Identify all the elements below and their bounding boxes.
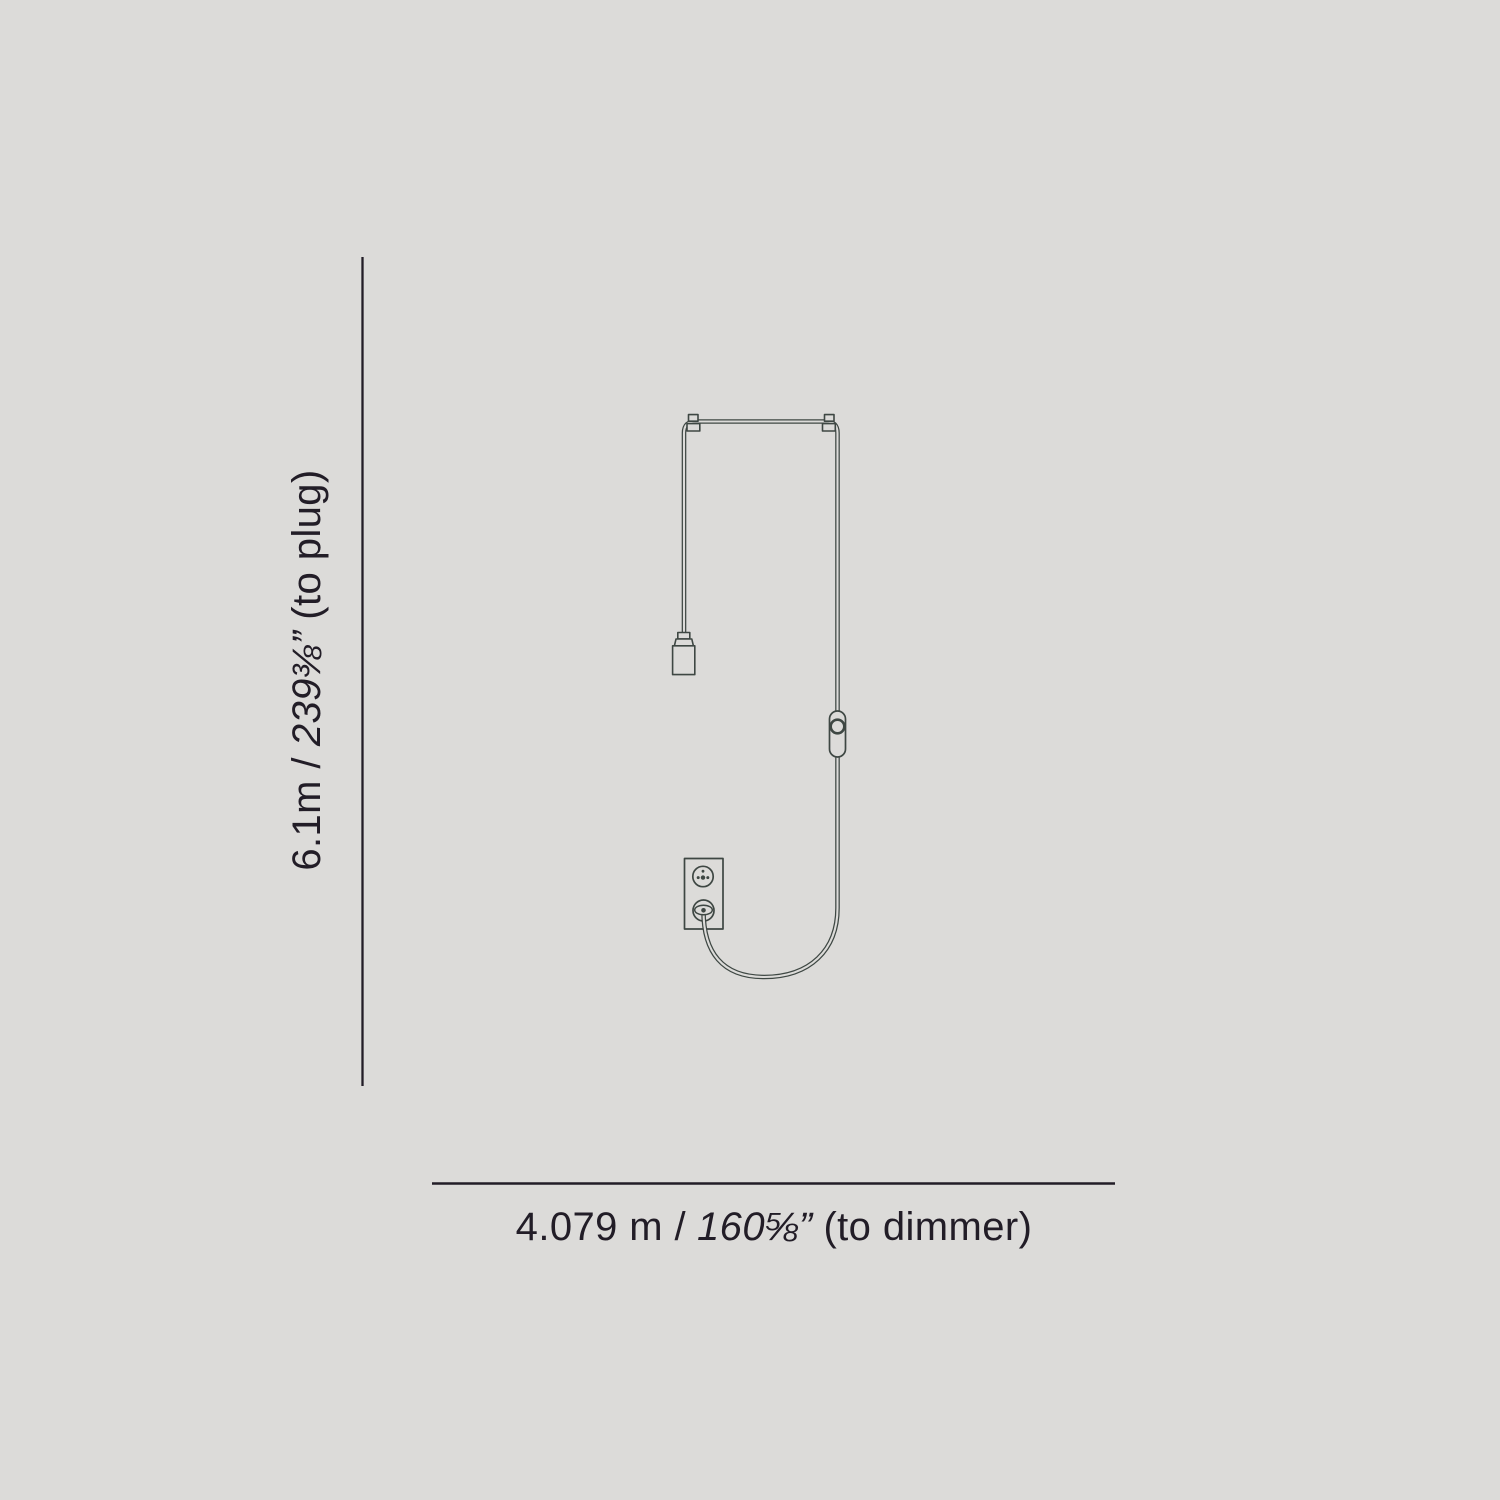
right-clip-tab [825,415,835,422]
vertical-dimension-note: (to plug) [285,469,329,619]
lamp-socket-icon [673,633,695,675]
vertical-metric-value: 6.1m / [285,757,329,871]
socket-collar [674,639,693,646]
left-clip-base [687,424,700,431]
vertical-dimension-label: 6.1m / 239⅜” (to plug) [285,270,329,1070]
socket-body [673,646,695,675]
dimmer-icon [830,711,846,757]
horizontal-dimension-label: 4.079 m / 160⅝” (to dimmer) [432,1205,1116,1249]
right-clip-base [823,424,836,431]
lamp-technical-drawing [0,0,1500,1500]
dimmer-wheel [831,720,845,734]
plug-icon [695,905,713,915]
socket-neck [678,633,690,639]
lamp-dimension-diagram: 6.1m / 239⅜” (to plug) 4.079 m / 160⅝” (… [0,0,1500,1500]
left-clip-tab [689,415,699,422]
lamp-drawing-group [673,415,846,977]
plug-cord-dot [701,908,706,913]
horizontal-metric-value: 4.079 m / [516,1205,686,1249]
dimension-lines [363,257,1116,1184]
horizontal-dimension-note: (to dimmer) [823,1205,1032,1249]
vertical-imperial-value: 239⅜” [285,631,329,746]
horizontal-imperial-value: 160⅝” [697,1205,812,1249]
